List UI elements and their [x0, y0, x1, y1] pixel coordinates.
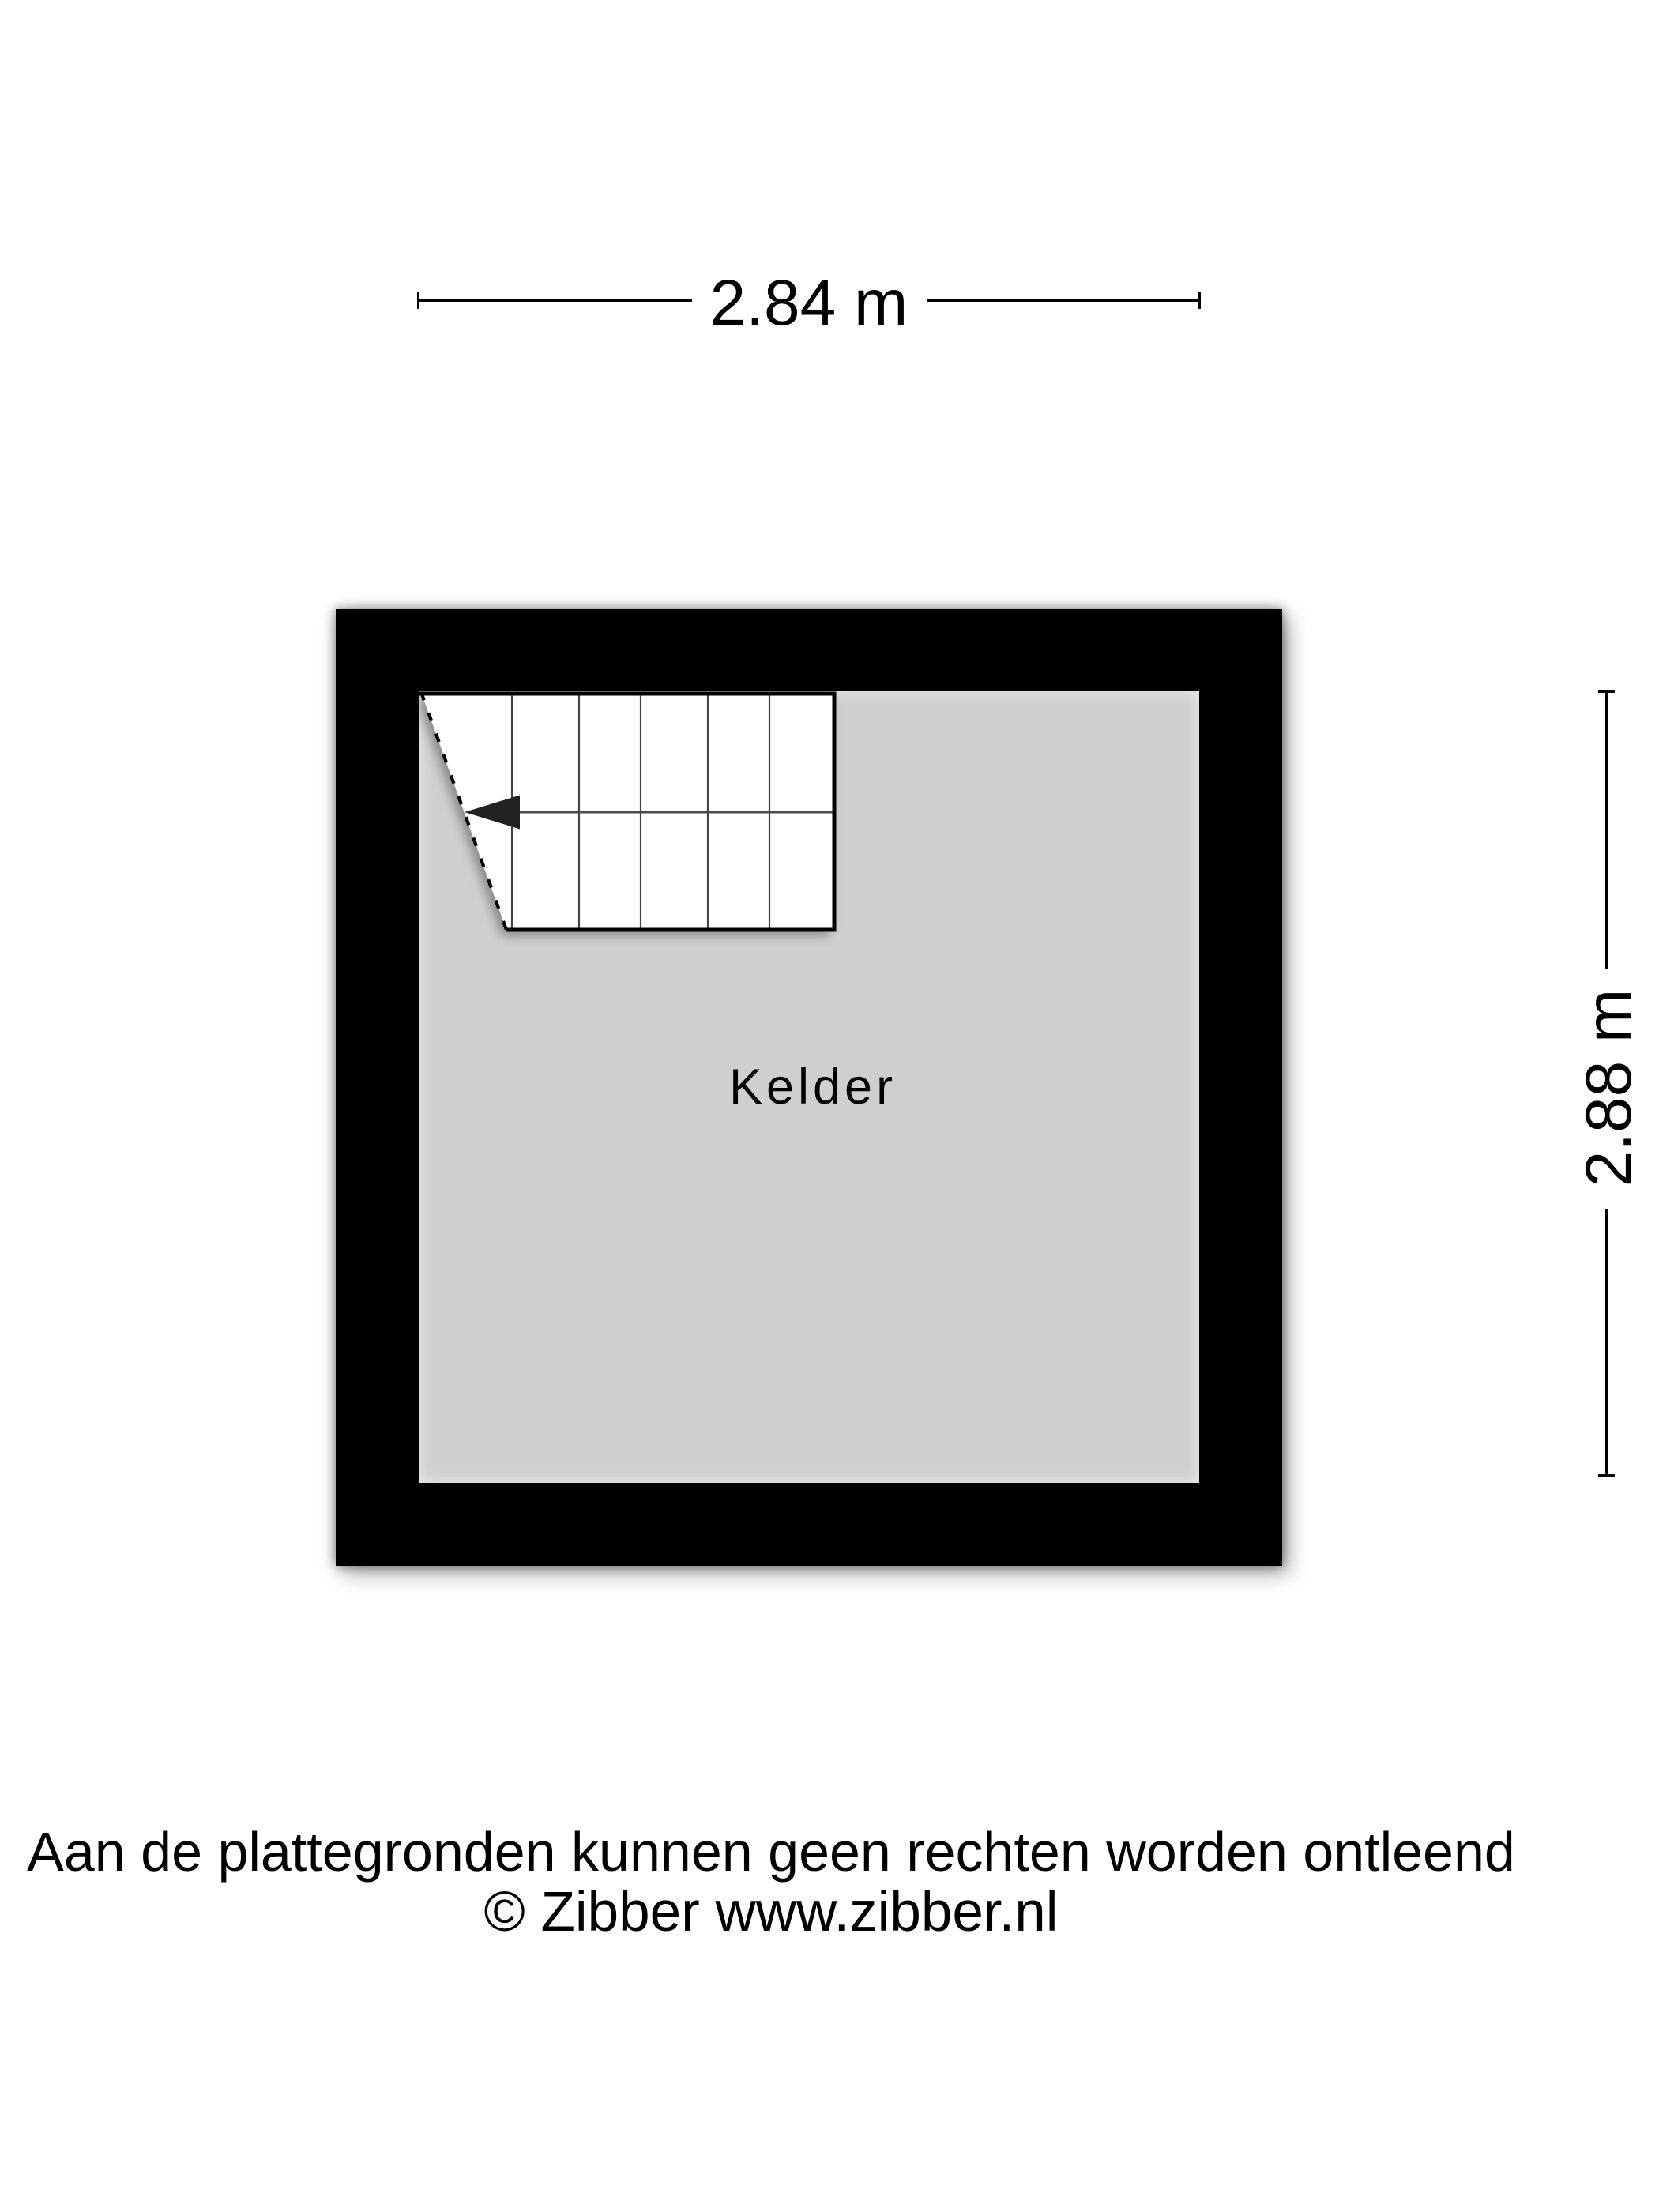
svg-text:2.84 m: 2.84 m: [710, 267, 908, 339]
svg-text:2.88 m: 2.88 m: [1573, 989, 1645, 1187]
